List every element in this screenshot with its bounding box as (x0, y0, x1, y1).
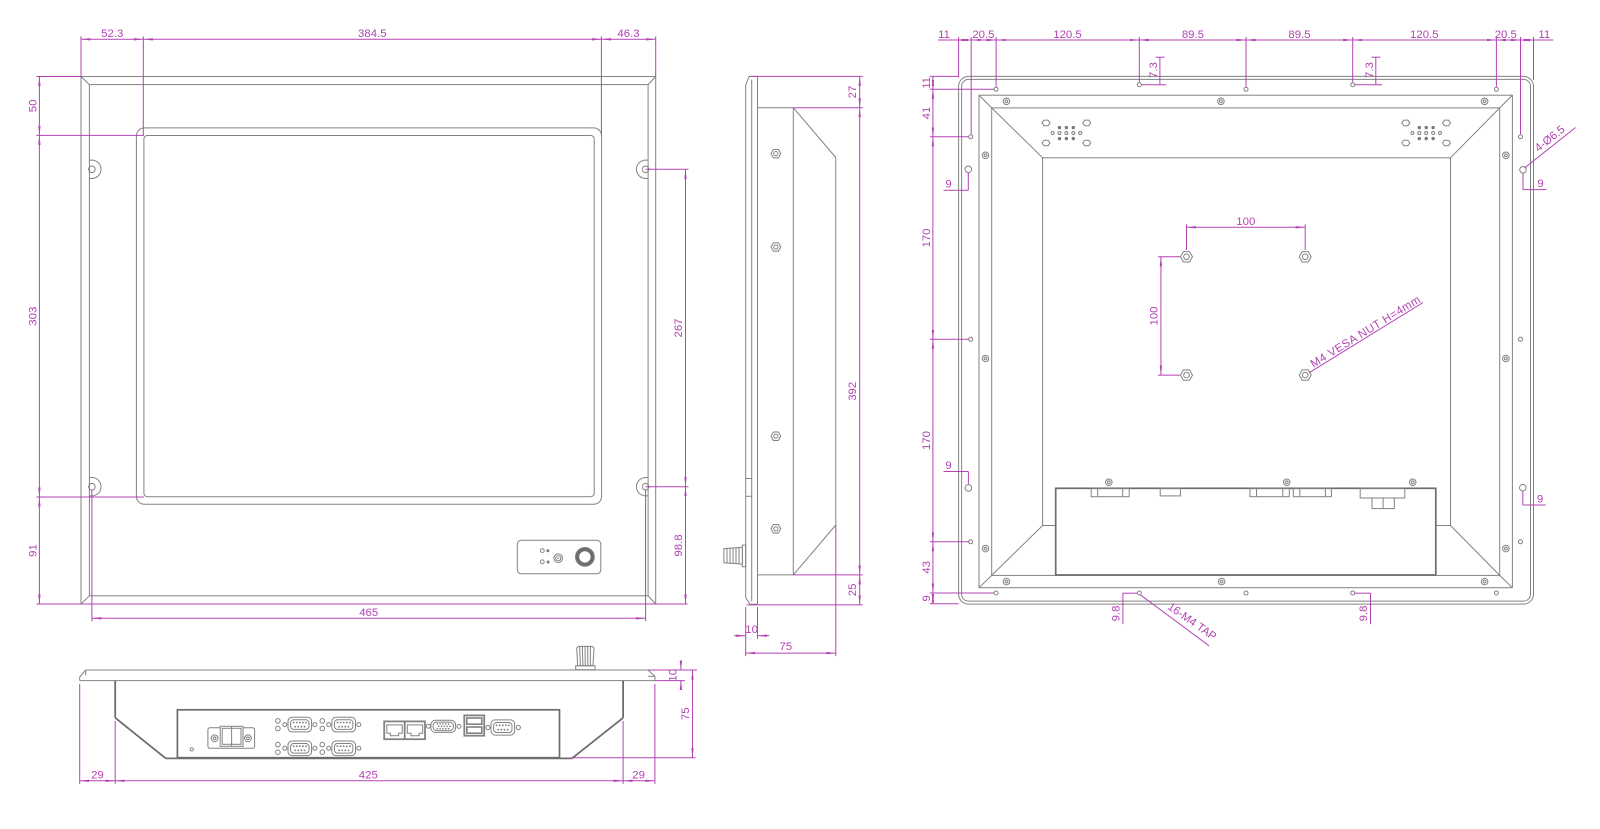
svg-text:100: 100 (1148, 306, 1160, 325)
svg-text:75: 75 (680, 707, 692, 720)
svg-text:120.5: 120.5 (1410, 29, 1439, 41)
svg-text:11: 11 (1538, 29, 1550, 41)
svg-text:11: 11 (921, 77, 933, 89)
svg-text:7.3: 7.3 (1364, 62, 1376, 78)
svg-text:9: 9 (945, 179, 951, 191)
svg-text:120.5: 120.5 (1053, 29, 1082, 41)
svg-text:170: 170 (921, 228, 933, 247)
svg-text:465: 465 (359, 607, 378, 619)
svg-text:384.5: 384.5 (358, 28, 387, 40)
svg-text:98.8: 98.8 (673, 534, 685, 556)
svg-text:41: 41 (921, 107, 933, 120)
svg-text:52.3: 52.3 (101, 28, 123, 40)
svg-text:392: 392 (847, 382, 859, 401)
svg-text:20.5: 20.5 (972, 29, 994, 41)
svg-text:43: 43 (921, 561, 933, 574)
svg-text:7.3: 7.3 (1148, 62, 1160, 78)
svg-text:91: 91 (28, 544, 40, 557)
svg-text:267: 267 (673, 318, 685, 337)
svg-text:425: 425 (359, 770, 378, 782)
svg-text:303: 303 (28, 307, 40, 326)
svg-text:10: 10 (745, 624, 758, 636)
svg-text:9.8: 9.8 (1358, 606, 1370, 622)
svg-text:46.3: 46.3 (617, 28, 639, 40)
svg-text:100: 100 (1236, 216, 1255, 228)
svg-text:25: 25 (847, 584, 859, 597)
svg-text:89.5: 89.5 (1182, 29, 1204, 41)
svg-text:27: 27 (847, 86, 859, 99)
svg-text:9: 9 (921, 595, 933, 601)
svg-text:9: 9 (1537, 493, 1543, 505)
svg-text:9.8: 9.8 (1111, 606, 1123, 622)
svg-text:11: 11 (938, 29, 950, 41)
svg-text:75: 75 (779, 641, 792, 653)
svg-text:20.5: 20.5 (1495, 29, 1517, 41)
svg-text:29: 29 (632, 770, 645, 782)
svg-text:29: 29 (91, 770, 104, 782)
svg-text:10: 10 (667, 669, 679, 682)
svg-text:89.5: 89.5 (1288, 29, 1310, 41)
svg-text:50: 50 (28, 100, 40, 113)
svg-text:170: 170 (921, 431, 933, 450)
svg-text:9: 9 (945, 460, 951, 472)
svg-text:9: 9 (1537, 178, 1543, 190)
